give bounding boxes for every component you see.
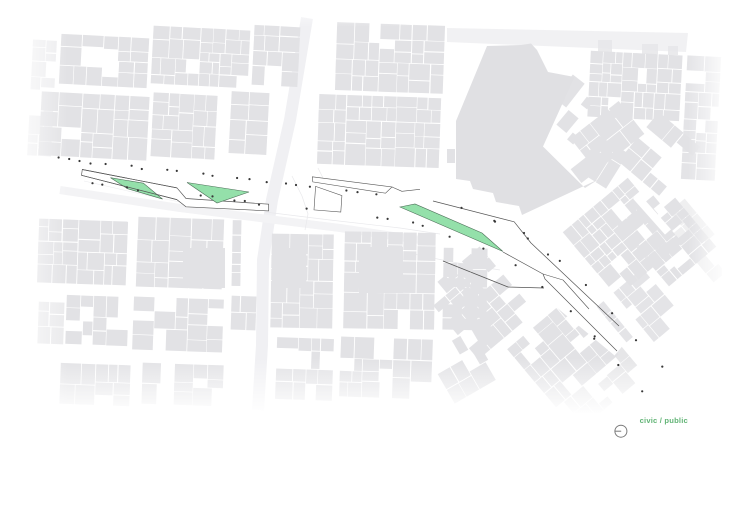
svg-text:civic / public: civic / public [640,416,688,425]
